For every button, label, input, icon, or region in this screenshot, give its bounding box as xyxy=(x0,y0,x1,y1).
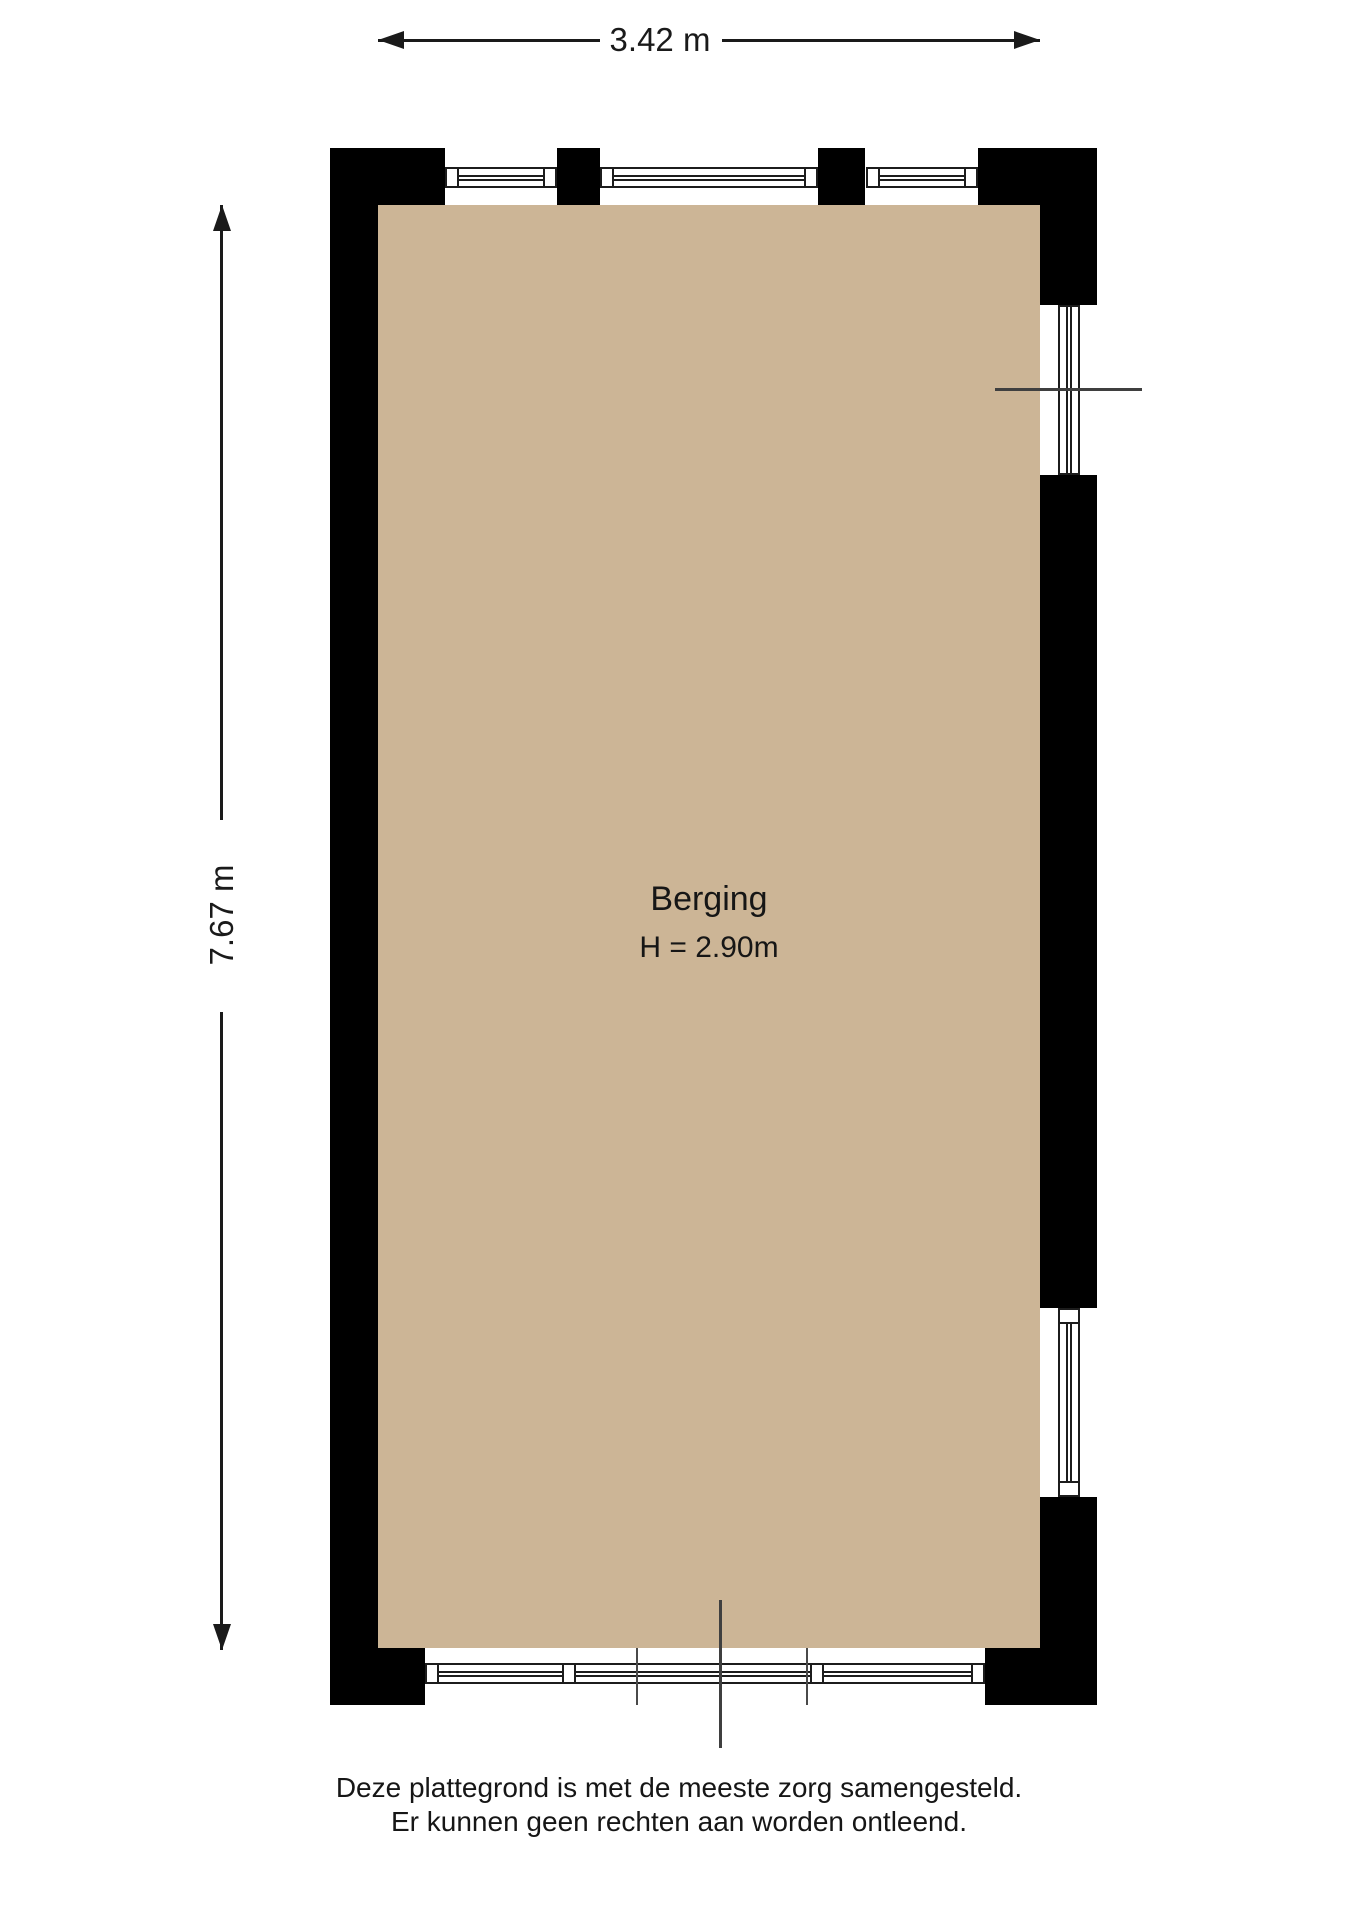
dimension-height-label: 7.67 m xyxy=(203,815,241,1015)
window-frame-cap xyxy=(562,1663,576,1684)
window-mullion-line xyxy=(806,1648,808,1705)
wall-top-left-corner xyxy=(330,148,445,205)
window-frame-cap xyxy=(810,1663,824,1684)
window-frame-cap xyxy=(1058,1308,1080,1324)
dimension-top-line-right xyxy=(722,39,1040,42)
dimension-width-label: 3.42 m xyxy=(560,21,760,59)
dimension-top-arrow-left-icon xyxy=(378,31,404,49)
window-frame-cap xyxy=(971,1663,985,1684)
dimension-left-line-top xyxy=(220,205,223,820)
window-frame-cap xyxy=(543,167,557,188)
reference-line-right xyxy=(995,388,1142,391)
window-frame-cap xyxy=(600,167,614,188)
window-top-3 xyxy=(866,167,978,188)
window-frame-cap xyxy=(964,167,978,188)
window-frame-cap xyxy=(1058,1481,1080,1497)
reference-line-bottom xyxy=(719,1600,722,1748)
window-mullion-line xyxy=(636,1648,638,1705)
wall-right-upper xyxy=(1040,148,1097,305)
wall-left xyxy=(330,148,378,1705)
disclaimer-line-2: Er kunnen geen rechten aan worden ontlee… xyxy=(0,1806,1358,1838)
window-frame-cap xyxy=(866,167,880,188)
window-top-2 xyxy=(600,167,818,188)
dimension-left-line-bottom xyxy=(220,1012,223,1650)
window-top-1 xyxy=(445,167,557,188)
window-right-2 xyxy=(1058,1308,1080,1497)
wall-right-middle xyxy=(1040,475,1097,1308)
window-frame-cap xyxy=(445,167,459,188)
dimension-left-arrow-up-icon xyxy=(213,205,231,231)
window-bottom xyxy=(425,1663,985,1684)
room-name-label: Berging xyxy=(559,880,859,919)
dimension-top-arrow-right-icon xyxy=(1014,31,1040,49)
disclaimer-line-1: Deze plattegrond is met de meeste zorg s… xyxy=(0,1772,1358,1804)
window-frame-cap xyxy=(804,167,818,188)
room-floor xyxy=(378,205,1040,1648)
wall-bottom-right-corner xyxy=(985,1648,1097,1705)
window-frame-cap xyxy=(425,1663,439,1684)
room-ceiling-height-label: H = 2.90m xyxy=(559,931,859,965)
wall-bottom-left-corner xyxy=(330,1648,425,1705)
floor-plan-page: 3.42 m 7.67 m xyxy=(0,0,1358,1920)
wall-top-pillar-2 xyxy=(818,148,865,205)
wall-top-pillar-1 xyxy=(557,148,600,205)
dimension-left-arrow-down-icon xyxy=(213,1624,231,1650)
